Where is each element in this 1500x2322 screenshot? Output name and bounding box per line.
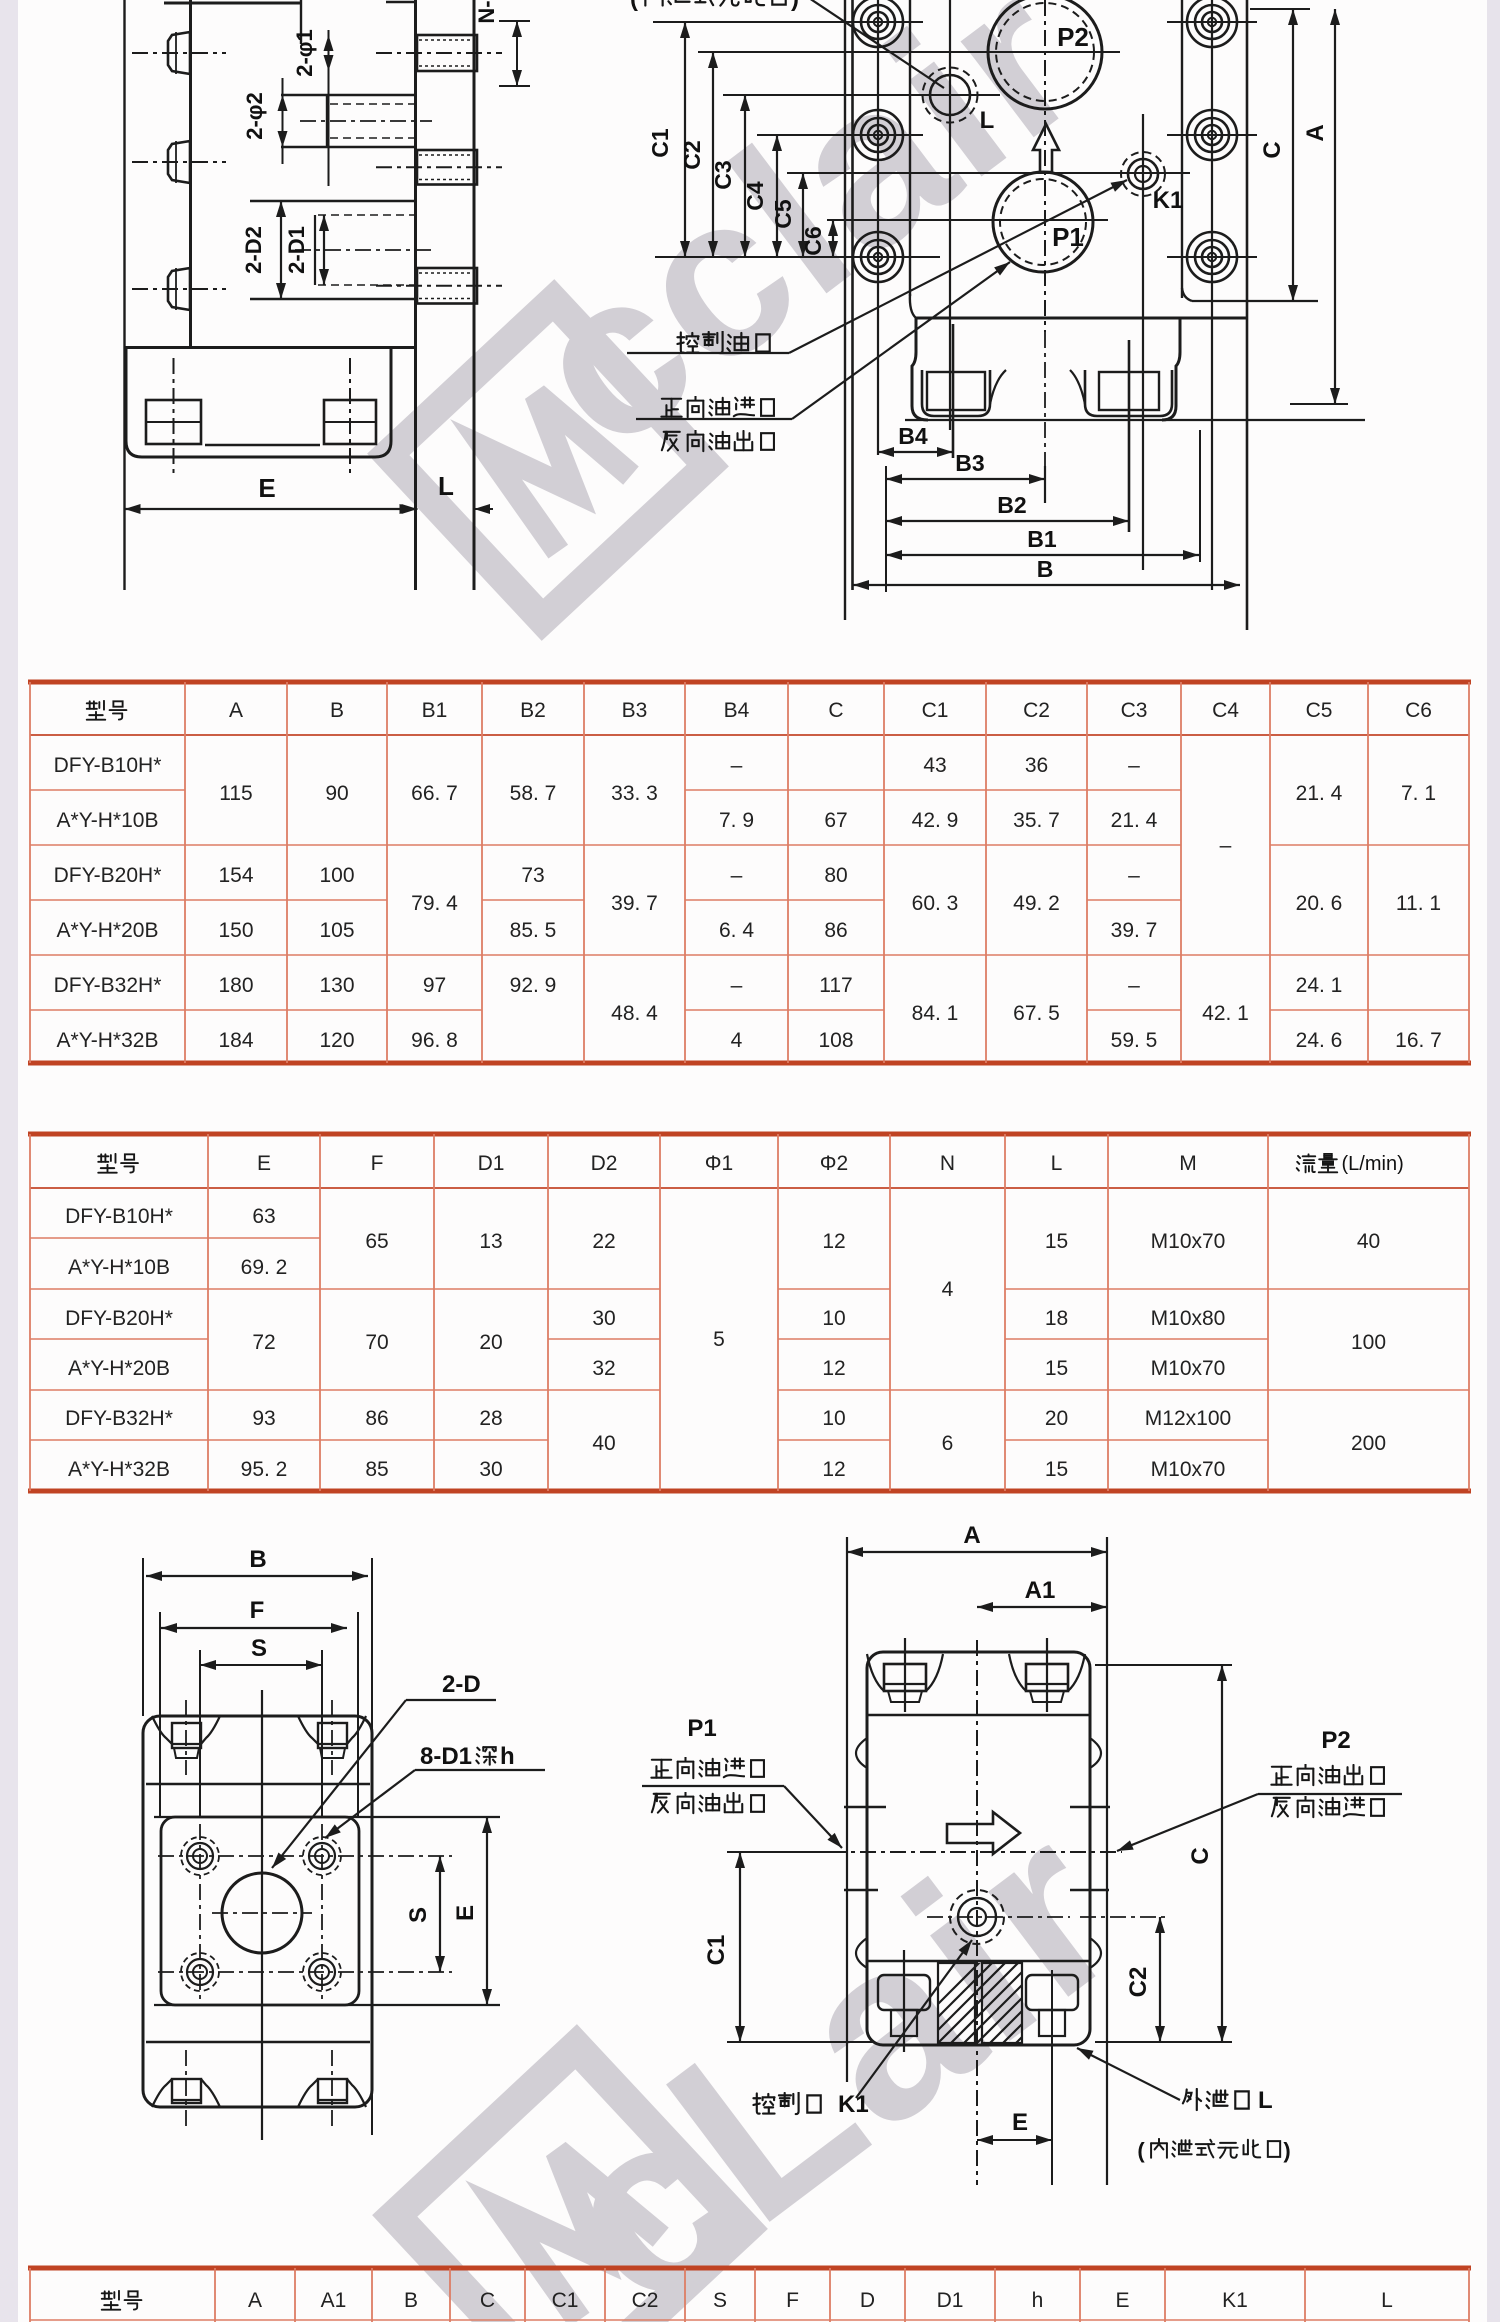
svg-text:84. 1: 84. 1 <box>912 1002 959 1025</box>
svg-text:M10x70: M10x70 <box>1151 1357 1226 1380</box>
svg-text:67: 67 <box>824 809 847 832</box>
svg-text:D2: D2 <box>591 1152 618 1175</box>
svg-text:F: F <box>371 1152 384 1175</box>
svg-text:20: 20 <box>1045 1407 1068 1430</box>
svg-text:A*Y-H*10B: A*Y-H*10B <box>57 809 159 832</box>
svg-text:184: 184 <box>218 1029 253 1052</box>
svg-text:–: – <box>731 864 743 887</box>
svg-text:105: 105 <box>319 919 354 942</box>
svg-text:C5: C5 <box>1306 699 1333 722</box>
svg-text:32: 32 <box>592 1357 615 1380</box>
svg-text:85. 5: 85. 5 <box>510 919 557 942</box>
svg-text:93: 93 <box>252 1407 275 1430</box>
svg-text:35. 7: 35. 7 <box>1013 809 1060 832</box>
svg-text:58. 7: 58. 7 <box>510 782 557 805</box>
svg-text:Φ1: Φ1 <box>705 1152 733 1175</box>
svg-text:N: N <box>940 1152 955 1175</box>
svg-text:69. 2: 69. 2 <box>241 1256 288 1279</box>
svg-text:100: 100 <box>319 864 354 887</box>
svg-text:7. 1: 7. 1 <box>1401 782 1436 805</box>
svg-text:13: 13 <box>479 1230 502 1253</box>
svg-text:39. 7: 39. 7 <box>1111 919 1158 942</box>
svg-text:33. 3: 33. 3 <box>611 782 658 805</box>
svg-text:M12x100: M12x100 <box>1145 1407 1231 1430</box>
svg-text:12: 12 <box>822 1357 845 1380</box>
svg-text:12: 12 <box>822 1458 845 1481</box>
svg-text:7. 9: 7. 9 <box>719 809 754 832</box>
svg-text:36: 36 <box>1025 754 1048 777</box>
svg-text:M10x70: M10x70 <box>1151 1458 1226 1481</box>
svg-text:A: A <box>229 699 243 722</box>
svg-text:15: 15 <box>1045 1458 1068 1481</box>
svg-text:95. 2: 95. 2 <box>241 1458 288 1481</box>
svg-text:A1: A1 <box>321 2289 347 2312</box>
svg-text:A*Y-H*20B: A*Y-H*20B <box>68 1357 170 1380</box>
svg-text:73: 73 <box>521 864 544 887</box>
svg-text:Φ2: Φ2 <box>820 1152 848 1175</box>
svg-text:C1: C1 <box>922 699 949 722</box>
svg-text:M10x80: M10x80 <box>1151 1307 1226 1330</box>
svg-text:4: 4 <box>942 1278 954 1301</box>
svg-text:21. 4: 21. 4 <box>1296 782 1343 805</box>
svg-text:86: 86 <box>824 919 847 942</box>
svg-text:L: L <box>1381 2289 1393 2312</box>
svg-text:C3: C3 <box>1121 699 1148 722</box>
svg-text:97: 97 <box>423 974 446 997</box>
svg-text:15: 15 <box>1045 1357 1068 1380</box>
svg-text:S: S <box>713 2289 727 2312</box>
svg-text:10: 10 <box>822 1307 845 1330</box>
svg-text:20: 20 <box>479 1331 502 1354</box>
svg-text:12: 12 <box>822 1230 845 1253</box>
svg-text:86: 86 <box>365 1407 388 1430</box>
svg-text:15: 15 <box>1045 1230 1068 1253</box>
svg-text:200: 200 <box>1351 1432 1386 1455</box>
svg-text:39. 7: 39. 7 <box>611 892 658 915</box>
svg-text:–: – <box>1128 974 1140 997</box>
svg-text:C: C <box>480 2289 495 2312</box>
svg-text:A*Y-H*32B: A*Y-H*32B <box>57 1029 159 1052</box>
svg-text:L: L <box>1051 1152 1063 1175</box>
svg-text:B2: B2 <box>520 699 546 722</box>
svg-text:–: – <box>1220 834 1232 857</box>
svg-text:DFY-B10H*: DFY-B10H* <box>65 1205 173 1228</box>
svg-text:DFY-B32H*: DFY-B32H* <box>54 974 162 997</box>
svg-text:150: 150 <box>218 919 253 942</box>
svg-text:49. 2: 49. 2 <box>1013 892 1060 915</box>
svg-text:M: M <box>1179 1152 1197 1175</box>
svg-text:85: 85 <box>365 1458 388 1481</box>
svg-text:DFY-B10H*: DFY-B10H* <box>54 754 162 777</box>
svg-text:D1: D1 <box>478 1152 505 1175</box>
svg-text:115: 115 <box>219 782 252 805</box>
svg-text:4: 4 <box>731 1029 743 1052</box>
svg-text:180: 180 <box>218 974 253 997</box>
svg-text:6. 4: 6. 4 <box>719 919 754 942</box>
svg-text:E: E <box>257 1152 271 1175</box>
svg-text:E: E <box>1115 2289 1129 2312</box>
svg-text:C2: C2 <box>1023 699 1050 722</box>
svg-text:24. 6: 24. 6 <box>1296 1029 1343 1052</box>
svg-text:120: 120 <box>319 1029 354 1052</box>
svg-text:–: – <box>1128 864 1140 887</box>
svg-text:28: 28 <box>479 1407 502 1430</box>
svg-text:67. 5: 67. 5 <box>1013 1002 1060 1025</box>
svg-text:66. 7: 66. 7 <box>411 782 458 805</box>
svg-text:D: D <box>860 2289 875 2312</box>
svg-text:154: 154 <box>218 864 253 887</box>
svg-text:–: – <box>731 754 743 777</box>
svg-text:63: 63 <box>252 1205 275 1228</box>
svg-text:42. 9: 42. 9 <box>912 809 959 832</box>
svg-text:6: 6 <box>942 1432 954 1455</box>
svg-text:40: 40 <box>592 1432 615 1455</box>
svg-text:A: A <box>248 2289 262 2312</box>
svg-text:A*Y-H*10B: A*Y-H*10B <box>68 1256 170 1279</box>
svg-text:40: 40 <box>1357 1230 1380 1253</box>
svg-text:DFY-B20H*: DFY-B20H* <box>54 864 162 887</box>
svg-text:48. 4: 48. 4 <box>611 1002 658 1025</box>
svg-text:DFY-B32H*: DFY-B32H* <box>65 1407 173 1430</box>
svg-text:43: 43 <box>923 754 946 777</box>
svg-text:F: F <box>786 2289 799 2312</box>
svg-text:–: – <box>1128 754 1140 777</box>
svg-text:C2: C2 <box>632 2289 659 2312</box>
svg-text:11. 1: 11. 1 <box>1396 892 1441 915</box>
svg-text:60. 3: 60. 3 <box>912 892 959 915</box>
svg-text:72: 72 <box>252 1331 275 1354</box>
svg-text:90: 90 <box>325 782 348 805</box>
svg-text:D1: D1 <box>937 2289 964 2312</box>
svg-text:C4: C4 <box>1212 699 1239 722</box>
svg-text:16. 7: 16. 7 <box>1395 1029 1442 1052</box>
svg-text:21. 4: 21. 4 <box>1111 809 1158 832</box>
svg-text:(L/min): (L/min) <box>1342 1153 1404 1175</box>
svg-text:24. 1: 24. 1 <box>1296 974 1343 997</box>
svg-text:B4: B4 <box>724 699 750 722</box>
svg-text:80: 80 <box>824 864 847 887</box>
svg-text:92. 9: 92. 9 <box>510 974 557 997</box>
svg-text:B1: B1 <box>422 699 448 722</box>
svg-text:108: 108 <box>818 1029 853 1052</box>
svg-text:A*Y-H*32B: A*Y-H*32B <box>68 1458 170 1481</box>
svg-text:20. 6: 20. 6 <box>1296 892 1343 915</box>
svg-text:22: 22 <box>592 1230 615 1253</box>
svg-text:70: 70 <box>365 1331 388 1354</box>
svg-text:18: 18 <box>1045 1307 1068 1330</box>
svg-text:h: h <box>1032 2289 1044 2312</box>
svg-text:96. 8: 96. 8 <box>411 1029 458 1052</box>
svg-text:C6: C6 <box>1405 699 1432 722</box>
svg-text:10: 10 <box>822 1407 845 1430</box>
svg-text:100: 100 <box>1351 1331 1386 1354</box>
svg-text:B: B <box>404 2289 418 2312</box>
svg-text:B3: B3 <box>622 699 648 722</box>
svg-text:DFY-B20H*: DFY-B20H* <box>65 1307 173 1330</box>
svg-text:59. 5: 59. 5 <box>1111 1029 1158 1052</box>
svg-text:C: C <box>828 699 843 722</box>
svg-text:42. 1: 42. 1 <box>1202 1002 1249 1025</box>
svg-text:–: – <box>731 974 743 997</box>
svg-text:30: 30 <box>479 1458 502 1481</box>
svg-text:30: 30 <box>592 1307 615 1330</box>
svg-text:130: 130 <box>319 974 354 997</box>
svg-text:117: 117 <box>819 974 852 997</box>
svg-text:B: B <box>330 699 344 722</box>
svg-text:79. 4: 79. 4 <box>411 892 458 915</box>
svg-text:65: 65 <box>365 1230 388 1253</box>
svg-text:M10x70: M10x70 <box>1151 1230 1226 1253</box>
svg-text:K1: K1 <box>1222 2289 1248 2312</box>
svg-text:5: 5 <box>713 1328 725 1351</box>
svg-text:A*Y-H*20B: A*Y-H*20B <box>57 919 159 942</box>
svg-text:C1: C1 <box>552 2289 579 2312</box>
